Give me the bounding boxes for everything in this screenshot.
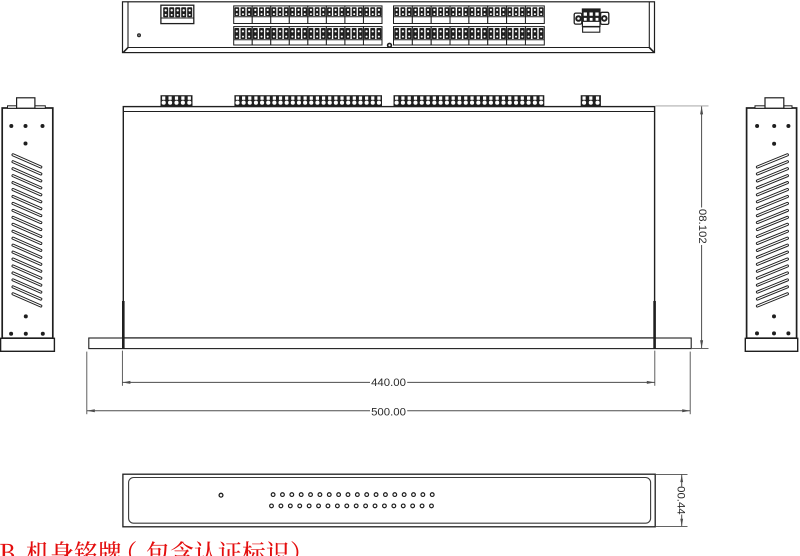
svg-text:00.44: 00.44	[674, 486, 686, 515]
svg-text:440.00: 440.00	[371, 377, 406, 389]
svg-text:500.00: 500.00	[371, 406, 406, 418]
svg-text:08.102: 08.102	[696, 209, 708, 244]
